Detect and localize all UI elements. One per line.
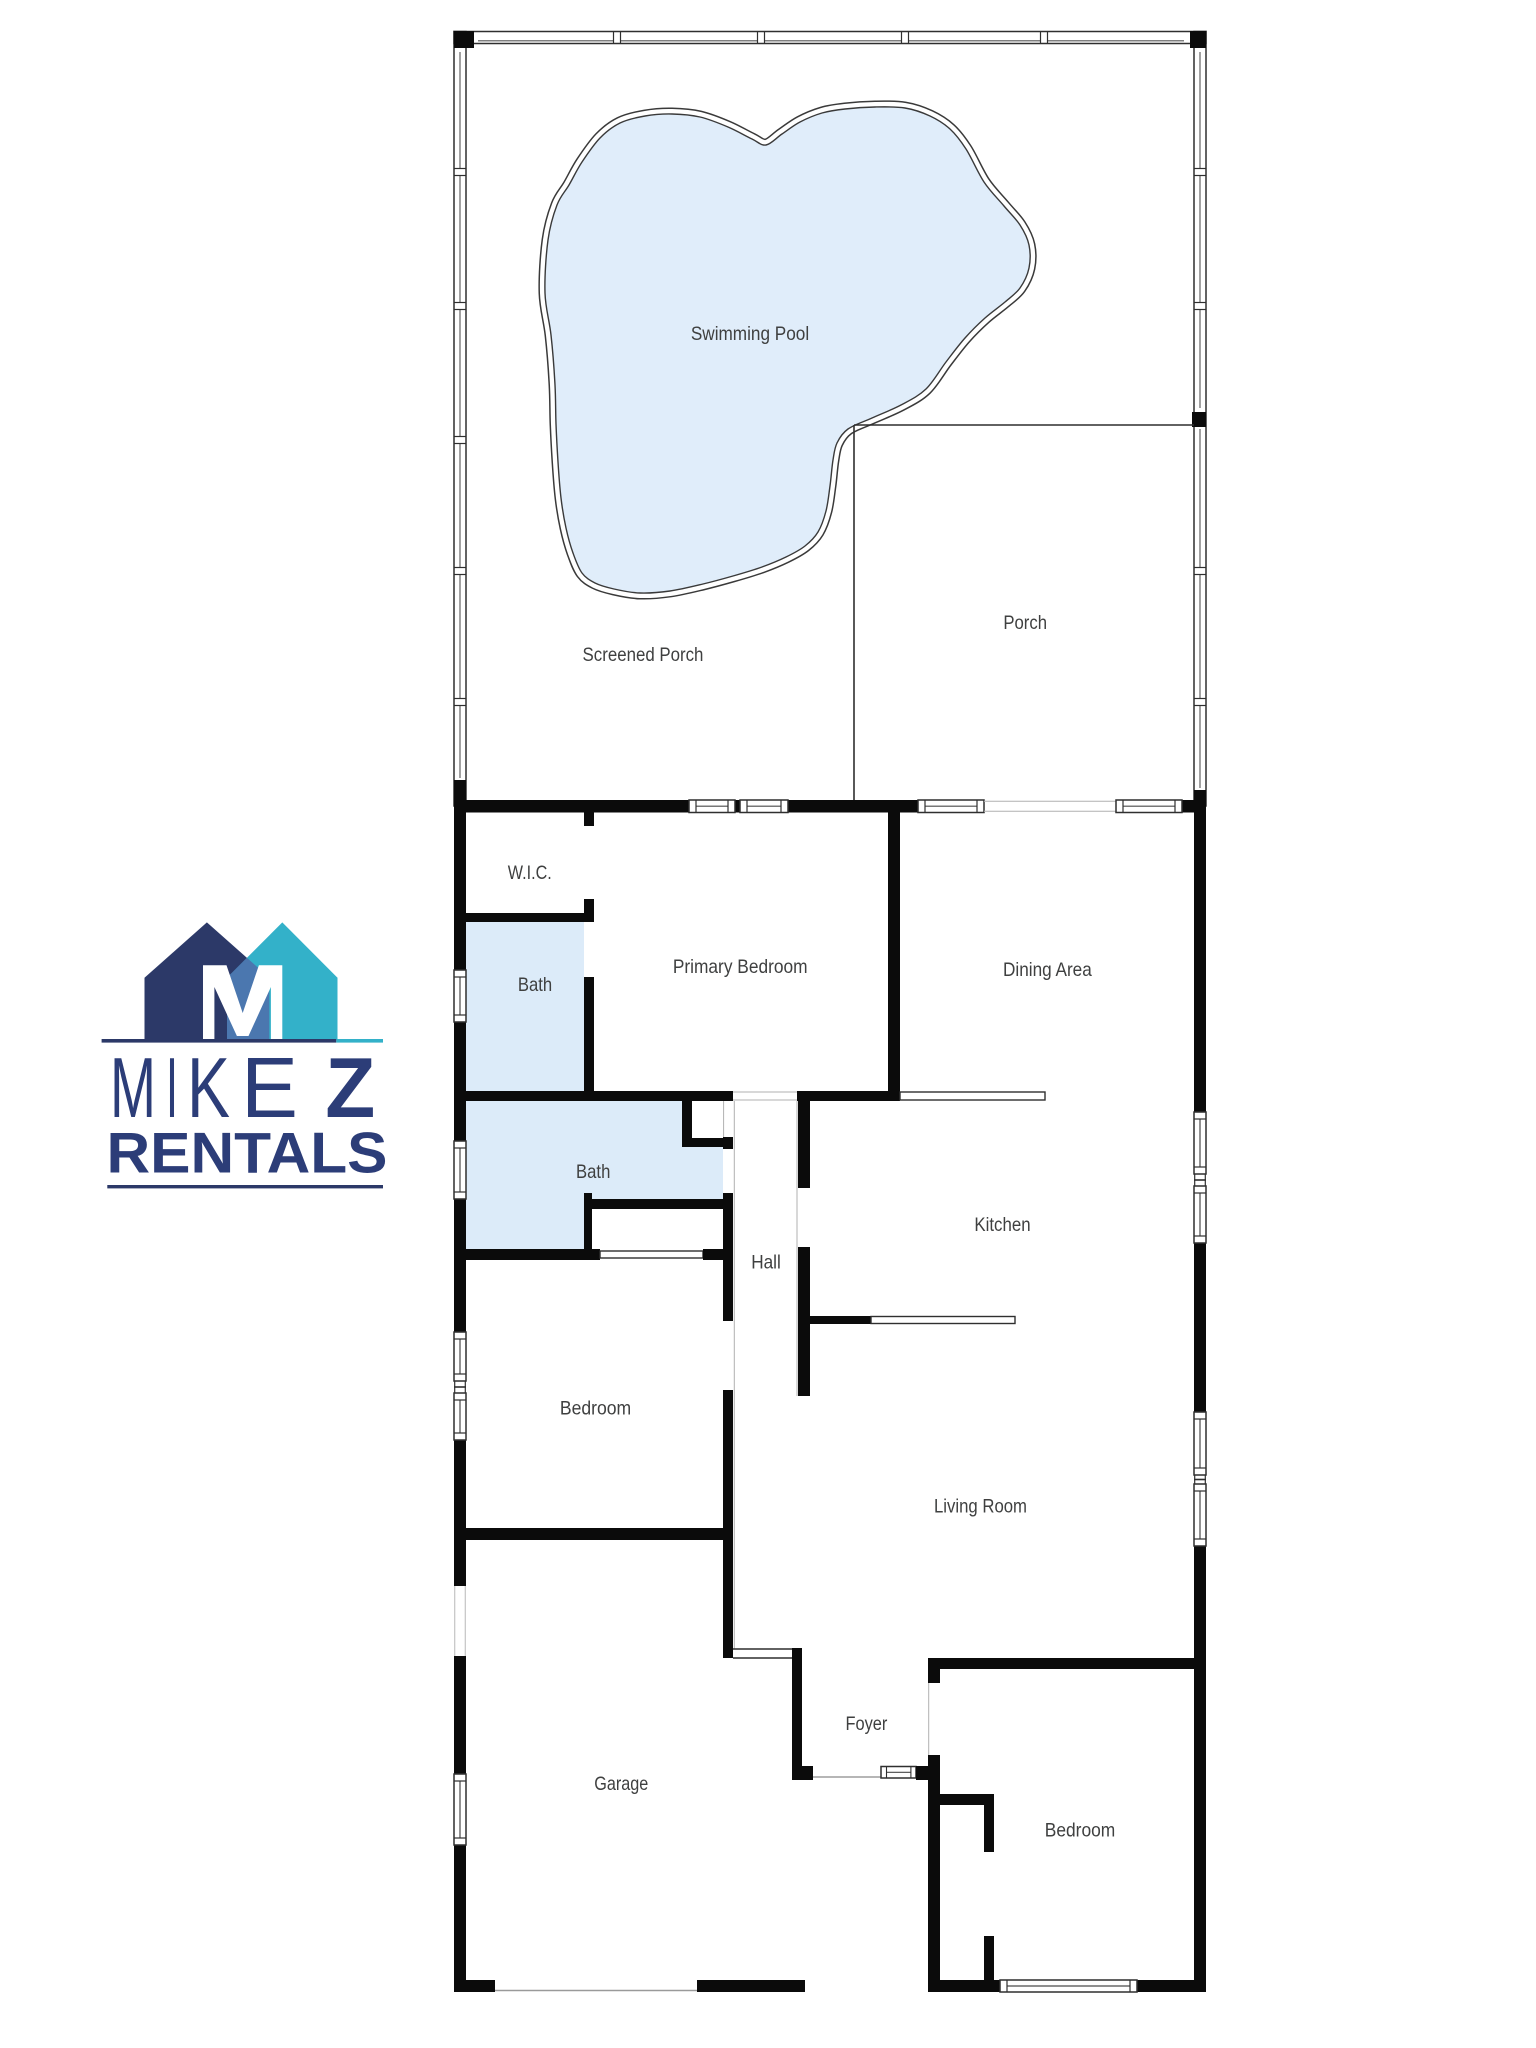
svg-text:W.I.C.: W.I.C.: [508, 862, 552, 884]
svg-text:Primary Bedroom: Primary Bedroom: [673, 956, 808, 978]
svg-text:Hall: Hall: [751, 1251, 781, 1273]
svg-text:Bath: Bath: [576, 1161, 610, 1183]
svg-text:Bedroom: Bedroom: [560, 1397, 631, 1419]
svg-text:Foyer: Foyer: [845, 1713, 887, 1735]
svg-text:Screened Porch: Screened Porch: [583, 644, 704, 666]
svg-text:Living Room: Living Room: [934, 1495, 1027, 1517]
svg-text:RENTALS: RENTALS: [107, 1122, 388, 1186]
svg-text:Porch: Porch: [1003, 612, 1047, 634]
svg-text:Bath: Bath: [518, 974, 552, 996]
svg-text:Dining Area: Dining Area: [1003, 959, 1092, 981]
svg-text:Bedroom: Bedroom: [1045, 1819, 1116, 1841]
svg-text:Kitchen: Kitchen: [974, 1214, 1030, 1236]
svg-text:Garage: Garage: [594, 1773, 648, 1795]
svg-text:Swimming Pool: Swimming Pool: [691, 323, 809, 345]
